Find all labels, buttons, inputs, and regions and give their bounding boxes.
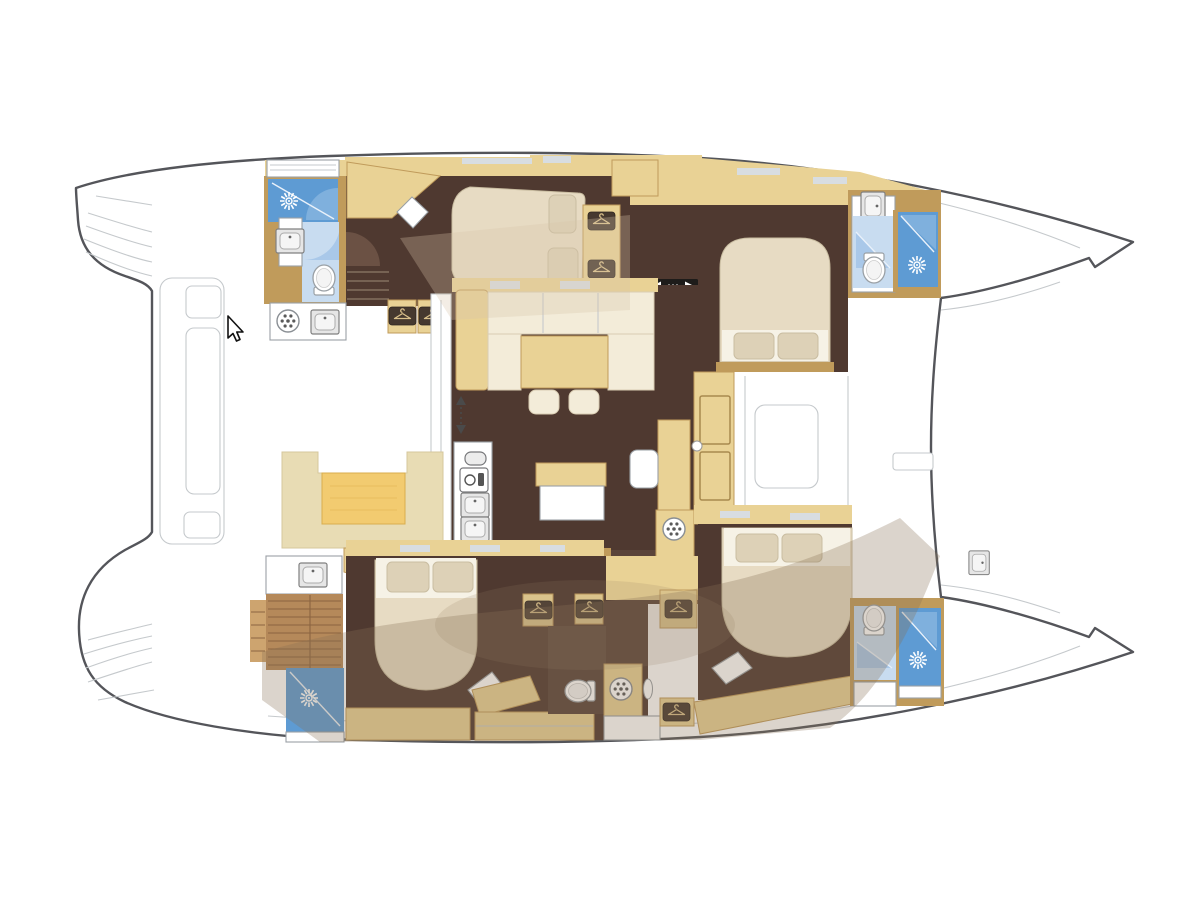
- nav-desk: [658, 420, 690, 510]
- pillow: [736, 534, 778, 562]
- bathroom-wall-fwd: [339, 176, 346, 306]
- bow-deck-lines: [941, 282, 1060, 613]
- stb-band-fwd: [694, 505, 852, 524]
- dining-table: [521, 336, 608, 388]
- pillow: [387, 562, 429, 592]
- pillow: [433, 562, 473, 592]
- galley-sink-icon: [461, 493, 489, 517]
- washer-icon: [277, 310, 299, 332]
- hanger-icon: [389, 307, 416, 325]
- roof-overlay-salon: [435, 580, 735, 670]
- catamaran-floor-plan: [0, 0, 1200, 900]
- stool: [529, 390, 559, 414]
- galley-sink-icon: [461, 517, 489, 541]
- helm-bench-cushion-outline: [186, 328, 220, 494]
- bed-foot-wall: [716, 362, 834, 372]
- sofa-seat-left: [488, 334, 521, 390]
- pillow: [734, 333, 774, 359]
- coffee-machine-icon: [460, 468, 488, 492]
- toilet-icon: [313, 265, 335, 295]
- fridge-icon: [663, 518, 685, 540]
- coffee-table-base: [540, 486, 604, 520]
- port-fwd-cabin: [700, 205, 848, 372]
- sink-icon: [299, 563, 327, 587]
- sink-icon: [861, 192, 885, 220]
- sink-icon: [311, 310, 339, 334]
- stool: [569, 390, 599, 414]
- helm-seat-bottom-outline: [184, 512, 220, 538]
- coffee-table: [536, 463, 606, 520]
- shower-sill: [899, 686, 941, 698]
- drawer-pull: [465, 452, 486, 465]
- port-aft-bathroom: [264, 160, 346, 306]
- wet-bar: [270, 303, 346, 340]
- helm-seat-top-outline: [186, 286, 221, 318]
- port-fwd-bathroom: [848, 190, 941, 298]
- door-knob: [692, 441, 702, 451]
- pillow: [778, 333, 818, 359]
- sink-icon: [969, 551, 989, 575]
- sofa-seat-right: [608, 334, 654, 390]
- nav-seat: [630, 450, 658, 488]
- toilet-icon: [863, 253, 885, 283]
- corridor-cabinet: [612, 160, 658, 196]
- floor-plan-stage: [0, 0, 1200, 900]
- coffee-table-top: [536, 463, 606, 486]
- cockpit-deck-outlines: [160, 278, 224, 544]
- deck-hatch-outline: [755, 405, 818, 488]
- deck-locker-outline: [893, 453, 933, 470]
- sink-icon: [276, 229, 304, 253]
- stb-hull-door: [692, 372, 734, 524]
- vanity-cabinet: [267, 160, 339, 177]
